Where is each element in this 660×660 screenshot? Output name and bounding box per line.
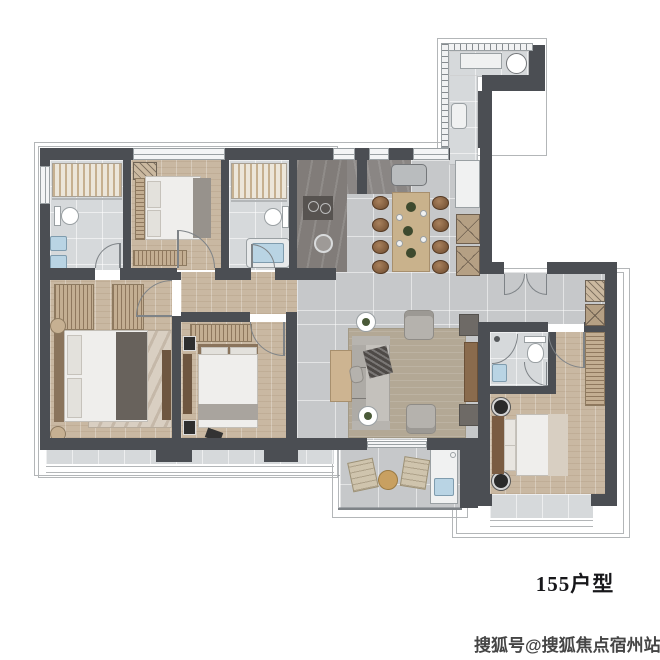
toilet-bowl <box>61 207 79 225</box>
hallway-floor <box>297 272 607 324</box>
bedroom-3-mat <box>183 420 196 435</box>
bedroom-3-console <box>183 354 192 414</box>
shower-mat <box>52 163 122 197</box>
watermark: 搜狐号@搜狐焦点宿州站 <box>474 631 660 656</box>
door-leaf <box>136 315 172 317</box>
bedroom-2-headboard <box>135 178 145 240</box>
bedroom-2-blanket <box>193 178 211 238</box>
suite-speaker <box>492 472 510 490</box>
dining-chair <box>372 240 389 254</box>
suite-bed-pillows <box>504 419 516 471</box>
dining-storage-cabinet <box>456 246 480 276</box>
master-bed-headboard <box>54 330 64 422</box>
dining-storage-cabinet <box>456 214 480 244</box>
master-nightstand <box>50 318 66 334</box>
dining-chair <box>372 218 389 232</box>
wall-horizontal <box>275 268 336 280</box>
floor-plan-canvas: 155户型 搜狐号@搜狐焦点宿州站 <box>0 0 660 660</box>
door-leaf <box>251 244 253 268</box>
dining-chair <box>372 260 389 274</box>
wall-horizontal <box>40 268 95 280</box>
balcony-table <box>378 470 398 490</box>
cooktop-burner <box>320 203 331 214</box>
bathroom-sink <box>50 236 67 251</box>
armchair <box>404 310 434 340</box>
suite-toilet-tank <box>524 336 546 343</box>
window <box>369 148 389 160</box>
bedroom-3-wardrobe <box>190 324 252 342</box>
window <box>40 166 50 204</box>
wall-bedroom3-top <box>181 312 250 322</box>
master-bed-pillow <box>67 335 82 375</box>
study-desk <box>330 350 352 402</box>
sliding-door <box>367 441 427 448</box>
wall-divider <box>123 148 131 272</box>
table-plant <box>406 202 416 212</box>
lounge-chair <box>400 456 430 490</box>
dining-chair <box>432 218 449 232</box>
wall-horizontal <box>120 268 177 280</box>
suite-speaker <box>492 398 510 416</box>
kitchen-sink-basin <box>391 164 427 186</box>
refrigerator <box>455 160 480 208</box>
table-plate <box>420 210 427 217</box>
suite-bed-headboard <box>492 416 504 474</box>
utility-counter <box>460 53 502 69</box>
toilet-bowl <box>264 208 282 226</box>
wall-suite-bath-bottom <box>490 386 548 394</box>
tv-console <box>464 342 478 402</box>
suite-bay-line <box>490 520 593 521</box>
laundry-basket <box>434 478 454 496</box>
bedroom-3-mat <box>183 336 196 351</box>
wall-master-right <box>172 272 181 280</box>
bay-window-line <box>46 472 334 473</box>
side-table-plant <box>362 318 370 326</box>
cooktop-burner <box>308 201 319 212</box>
window <box>133 148 225 160</box>
door-leaf <box>283 322 285 356</box>
water-heater <box>451 103 467 129</box>
wall-pier <box>156 438 192 462</box>
dining-chair <box>432 240 449 254</box>
wall-kitchen-right <box>480 148 492 274</box>
dining-chair <box>432 196 449 210</box>
suite-bed-blanket <box>548 414 568 476</box>
balcony-bottom-line <box>338 508 462 510</box>
planter <box>459 314 479 336</box>
armchair <box>406 404 436 434</box>
washing-machine <box>506 53 527 74</box>
suite-sink <box>492 364 507 382</box>
table-plant <box>406 248 416 258</box>
door-leaf <box>546 274 547 295</box>
wall-divider <box>289 148 297 272</box>
utility-railing <box>441 43 533 51</box>
wall-living-bottom <box>427 438 460 450</box>
shower-glass-line <box>52 198 122 200</box>
wall-kitchen-stub <box>357 148 367 194</box>
wall-suite-right <box>605 322 617 506</box>
wall-right-upper <box>605 262 617 328</box>
wall-divider <box>221 148 229 272</box>
wall-horizontal <box>215 268 251 280</box>
suite-wardrobe <box>585 332 605 406</box>
master-bed-blanket <box>116 332 147 420</box>
table-plate <box>396 240 403 247</box>
suite-bay-window <box>490 494 593 518</box>
toilet-tank <box>54 206 61 226</box>
plan-title: 155户型 <box>500 568 650 598</box>
door-leaf <box>177 230 179 268</box>
wall-balcony-right <box>460 438 478 508</box>
wall-living-bottom <box>297 438 367 450</box>
door-leaf <box>583 332 585 368</box>
master-bed-pillow <box>67 378 82 418</box>
wall-bedroom3-right <box>286 312 297 440</box>
wall-master-right <box>172 316 181 440</box>
window <box>413 148 449 160</box>
door-leaf <box>119 243 121 268</box>
table-plate <box>420 236 427 243</box>
dining-chair <box>372 196 389 210</box>
wall-entry-stub <box>492 262 504 274</box>
utility-railing <box>441 43 449 148</box>
wall-suite-bottom <box>591 494 617 506</box>
wall-utility-vertical <box>478 91 492 148</box>
table-plant <box>403 226 413 236</box>
suite-bay-line <box>490 526 593 527</box>
bay-window-line <box>46 466 334 467</box>
bedroom-2-pillow <box>147 181 161 208</box>
wall-utility-mid <box>482 75 545 91</box>
kitchen-round-sink <box>314 234 333 253</box>
side-table-plant <box>364 412 372 420</box>
suite-toilet-bowl <box>527 343 544 363</box>
sofa-arm <box>352 336 390 345</box>
wall-pier <box>264 438 298 462</box>
toilet-tank <box>282 206 289 228</box>
shower-mat <box>231 163 287 199</box>
master-console <box>162 350 171 420</box>
door-leaf <box>546 362 547 386</box>
wall-suite-left <box>478 322 490 506</box>
wall-suite-bottom <box>478 494 492 506</box>
door-leaf <box>504 274 505 295</box>
entry-cabinet <box>585 304 605 326</box>
dining-chair <box>432 260 449 274</box>
window <box>333 148 355 160</box>
planter <box>459 404 479 426</box>
desk-chair <box>349 365 365 384</box>
entry-cabinet <box>585 280 605 302</box>
suite-shower-head <box>494 336 500 342</box>
laundry-faucet <box>450 452 456 458</box>
bedroom-2-pillow <box>147 210 161 237</box>
table-plate <box>396 214 403 221</box>
bedroom-3-bed-runner <box>198 404 258 420</box>
shower-glass-line <box>231 200 287 202</box>
